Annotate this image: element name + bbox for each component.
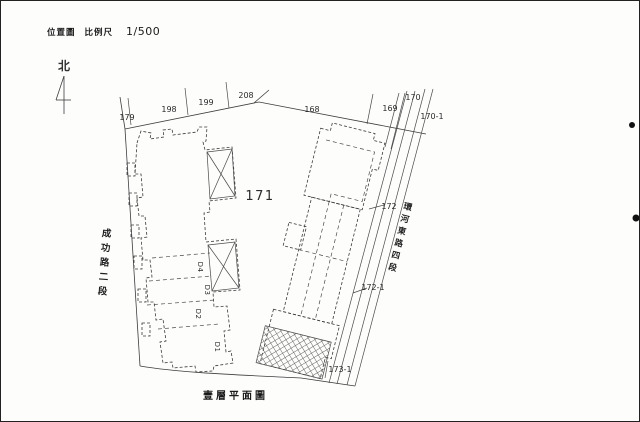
parcel-label-169: 169 bbox=[382, 104, 397, 113]
stair-core-1 bbox=[207, 149, 235, 199]
drawing-caption: 壹層平面圖 bbox=[203, 387, 268, 402]
parcel-label-173-1: 173-1 bbox=[328, 365, 351, 374]
parcel-label-168: 168 bbox=[304, 105, 319, 114]
road-edge-lines bbox=[329, 89, 433, 386]
parcel-label-179: 179 bbox=[119, 113, 134, 122]
unit-label-d4: D4 bbox=[196, 262, 204, 273]
parcel-label-170: 170 bbox=[405, 93, 420, 102]
unit-label-d1: D1 bbox=[213, 342, 221, 353]
stair-core-2 bbox=[208, 242, 239, 291]
parcel-label-199: 199 bbox=[198, 98, 213, 107]
drawing-sheet: 位置圖 比例尺 1/500 北 bbox=[0, 0, 640, 422]
parcel-label-208: 208 bbox=[238, 91, 253, 100]
hatched-building-area bbox=[256, 326, 331, 379]
parcel-label-171: 171 bbox=[245, 189, 274, 204]
site-plan-canvas: 179 198 199 208 168 169 170 170-1 171 17… bbox=[1, 1, 640, 422]
unit-label-d2: D2 bbox=[194, 309, 202, 320]
left-building-bays bbox=[127, 163, 150, 336]
scan-artifact-dots bbox=[629, 122, 640, 222]
hatch-pattern bbox=[256, 326, 331, 379]
parcel-label-172-1: 172-1 bbox=[361, 283, 384, 292]
parcel-label-172: 172 bbox=[381, 202, 396, 211]
lot-division-ticks bbox=[128, 82, 405, 378]
parcel-label-198: 198 bbox=[161, 105, 176, 114]
parcel-label-170-1: 170-1 bbox=[420, 112, 443, 121]
left-building-outline bbox=[127, 127, 240, 372]
unit-label-d3: D3 bbox=[203, 285, 211, 296]
